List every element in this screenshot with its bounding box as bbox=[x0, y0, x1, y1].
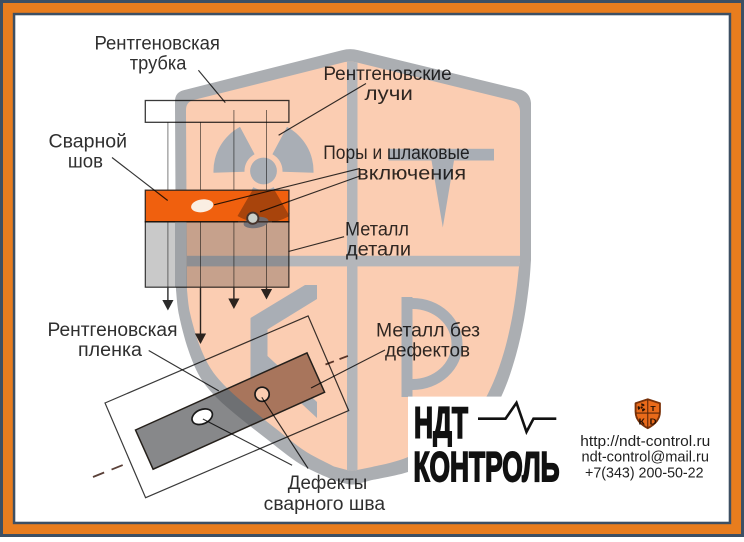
svg-text:дефектов: дефектов bbox=[385, 341, 470, 362]
svg-text:Поры и шлаковые: Поры и шлаковые bbox=[323, 143, 470, 164]
svg-text:D: D bbox=[650, 416, 657, 426]
svg-text:К: К bbox=[638, 416, 645, 426]
svg-text:Сварной: Сварной bbox=[49, 131, 128, 152]
svg-text:детали: детали bbox=[346, 240, 411, 261]
svg-text:включения: включения bbox=[357, 163, 466, 184]
svg-text:НДТ: НДТ bbox=[414, 399, 468, 448]
svg-text:http://ndt-control.ru: http://ndt-control.ru bbox=[580, 434, 710, 450]
svg-text:сварного шва: сварного шва bbox=[264, 494, 386, 515]
svg-text:шов: шов bbox=[68, 151, 103, 172]
svg-text:трубка: трубка bbox=[130, 53, 187, 74]
svg-text:Металл без: Металл без bbox=[376, 321, 480, 342]
svg-text:ndt-control@mail.ru: ndt-control@mail.ru bbox=[582, 450, 710, 466]
svg-text:лучи: лучи bbox=[365, 84, 413, 105]
svg-text:пленка: пленка bbox=[78, 340, 142, 361]
svg-text:Т: Т bbox=[650, 405, 656, 413]
svg-text:Металл: Металл bbox=[345, 220, 409, 241]
svg-text:+7(343) 200-50-22: +7(343) 200-50-22 bbox=[585, 466, 704, 482]
svg-text:Рентгеновская: Рентгеновская bbox=[94, 33, 220, 54]
svg-text:Дефекты: Дефекты bbox=[288, 473, 367, 494]
svg-text:Рентгеновские: Рентгеновские bbox=[323, 64, 451, 85]
svg-text:Рентгеновская: Рентгеновская bbox=[48, 320, 178, 341]
svg-text:КОНТРОЛЬ: КОНТРОЛЬ bbox=[414, 443, 560, 490]
